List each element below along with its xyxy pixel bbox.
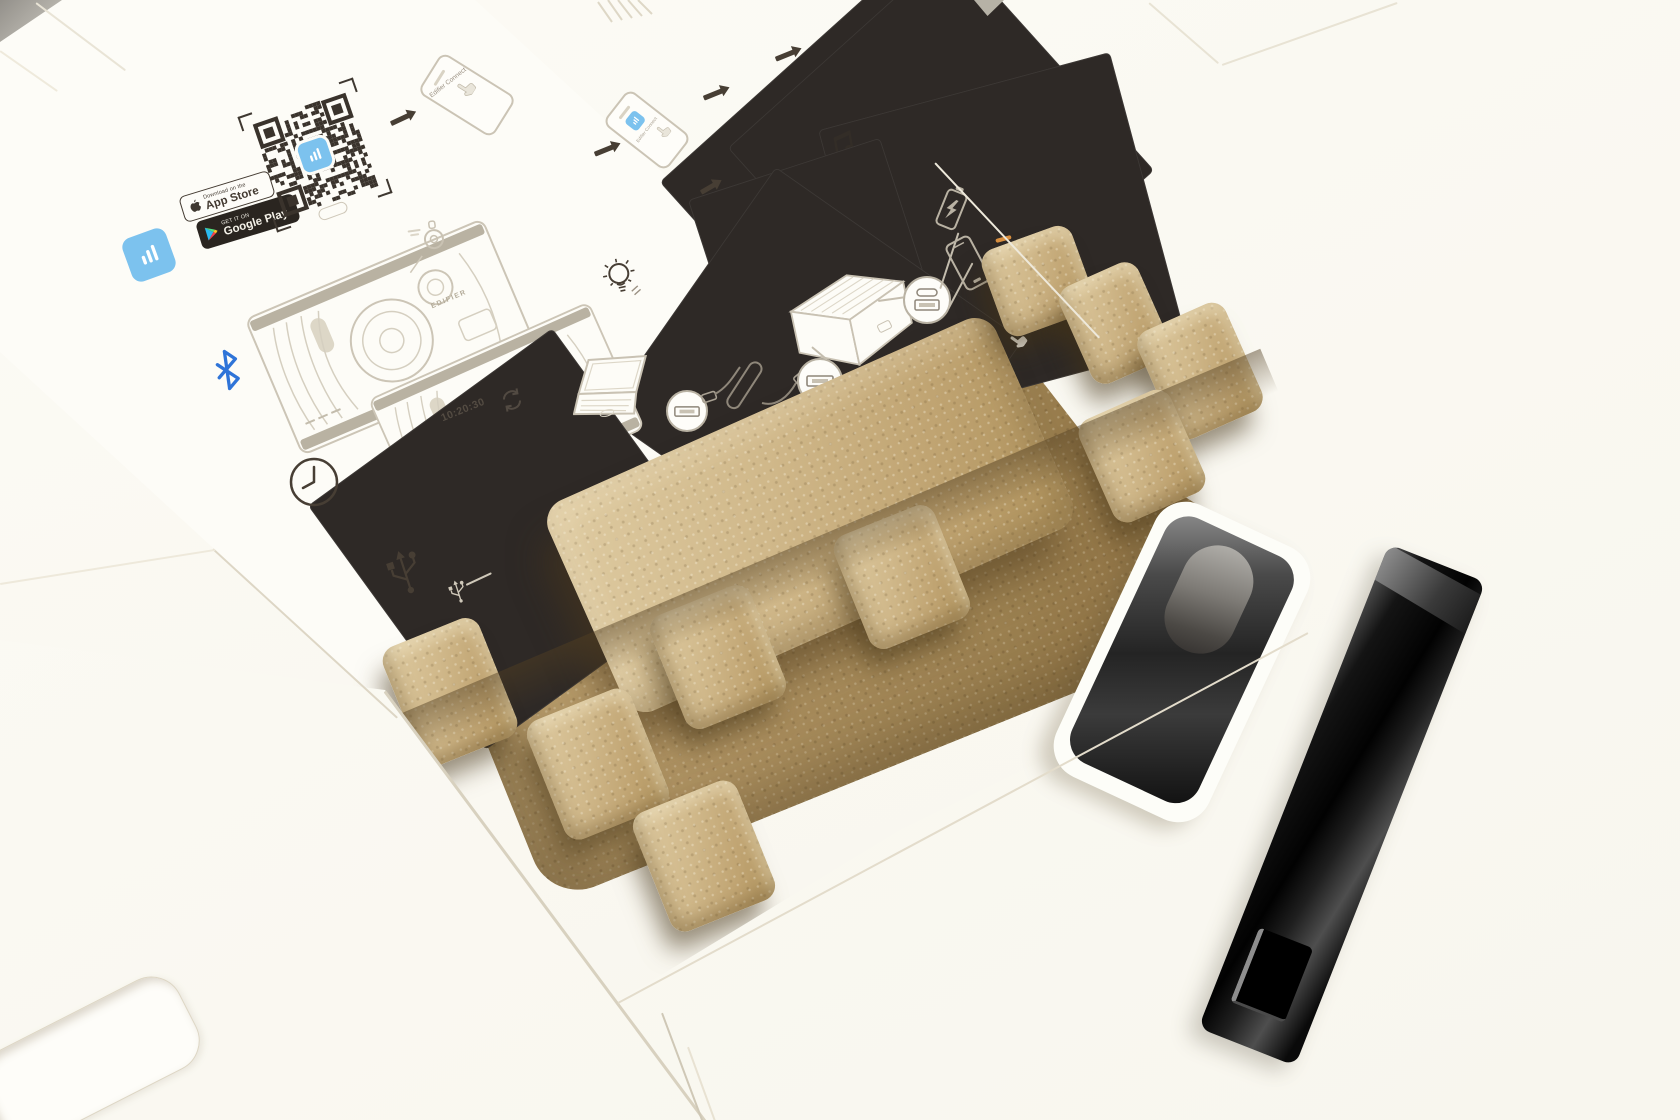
bluetooth-icon — [207, 346, 247, 394]
hand-cursor-icon — [654, 120, 674, 140]
arrow-icon — [775, 49, 795, 61]
knob-callout-icon — [400, 217, 455, 277]
cutoff-diagram-hatch — [592, 0, 670, 26]
usb-c-and-a-ports-icon — [912, 287, 942, 313]
lightbulb-icon — [596, 252, 649, 306]
edifier-app-icon — [120, 226, 179, 285]
photo-open-speaker-box: Download on the App Store GET IT ON Goog… — [0, 0, 1680, 1120]
usb-a-port-icon — [673, 403, 701, 420]
arrow-icon — [390, 113, 410, 126]
google-play-icon — [204, 223, 221, 241]
qr-bracket — [373, 179, 392, 198]
phone-edifier-connect: Edifier Connect — [417, 51, 517, 138]
apple-logo-icon — [186, 197, 203, 216]
edifier-logo-icon — [132, 238, 165, 271]
charging-ports-magnifier — [903, 276, 951, 324]
sync-icon — [498, 386, 526, 414]
arrow-icon — [594, 144, 614, 156]
arrow-icon — [703, 88, 723, 100]
clock-icon — [288, 456, 340, 508]
handle-hole — [1230, 927, 1313, 1023]
phone-app-icon-tap: Edifier Connect — [602, 88, 692, 172]
